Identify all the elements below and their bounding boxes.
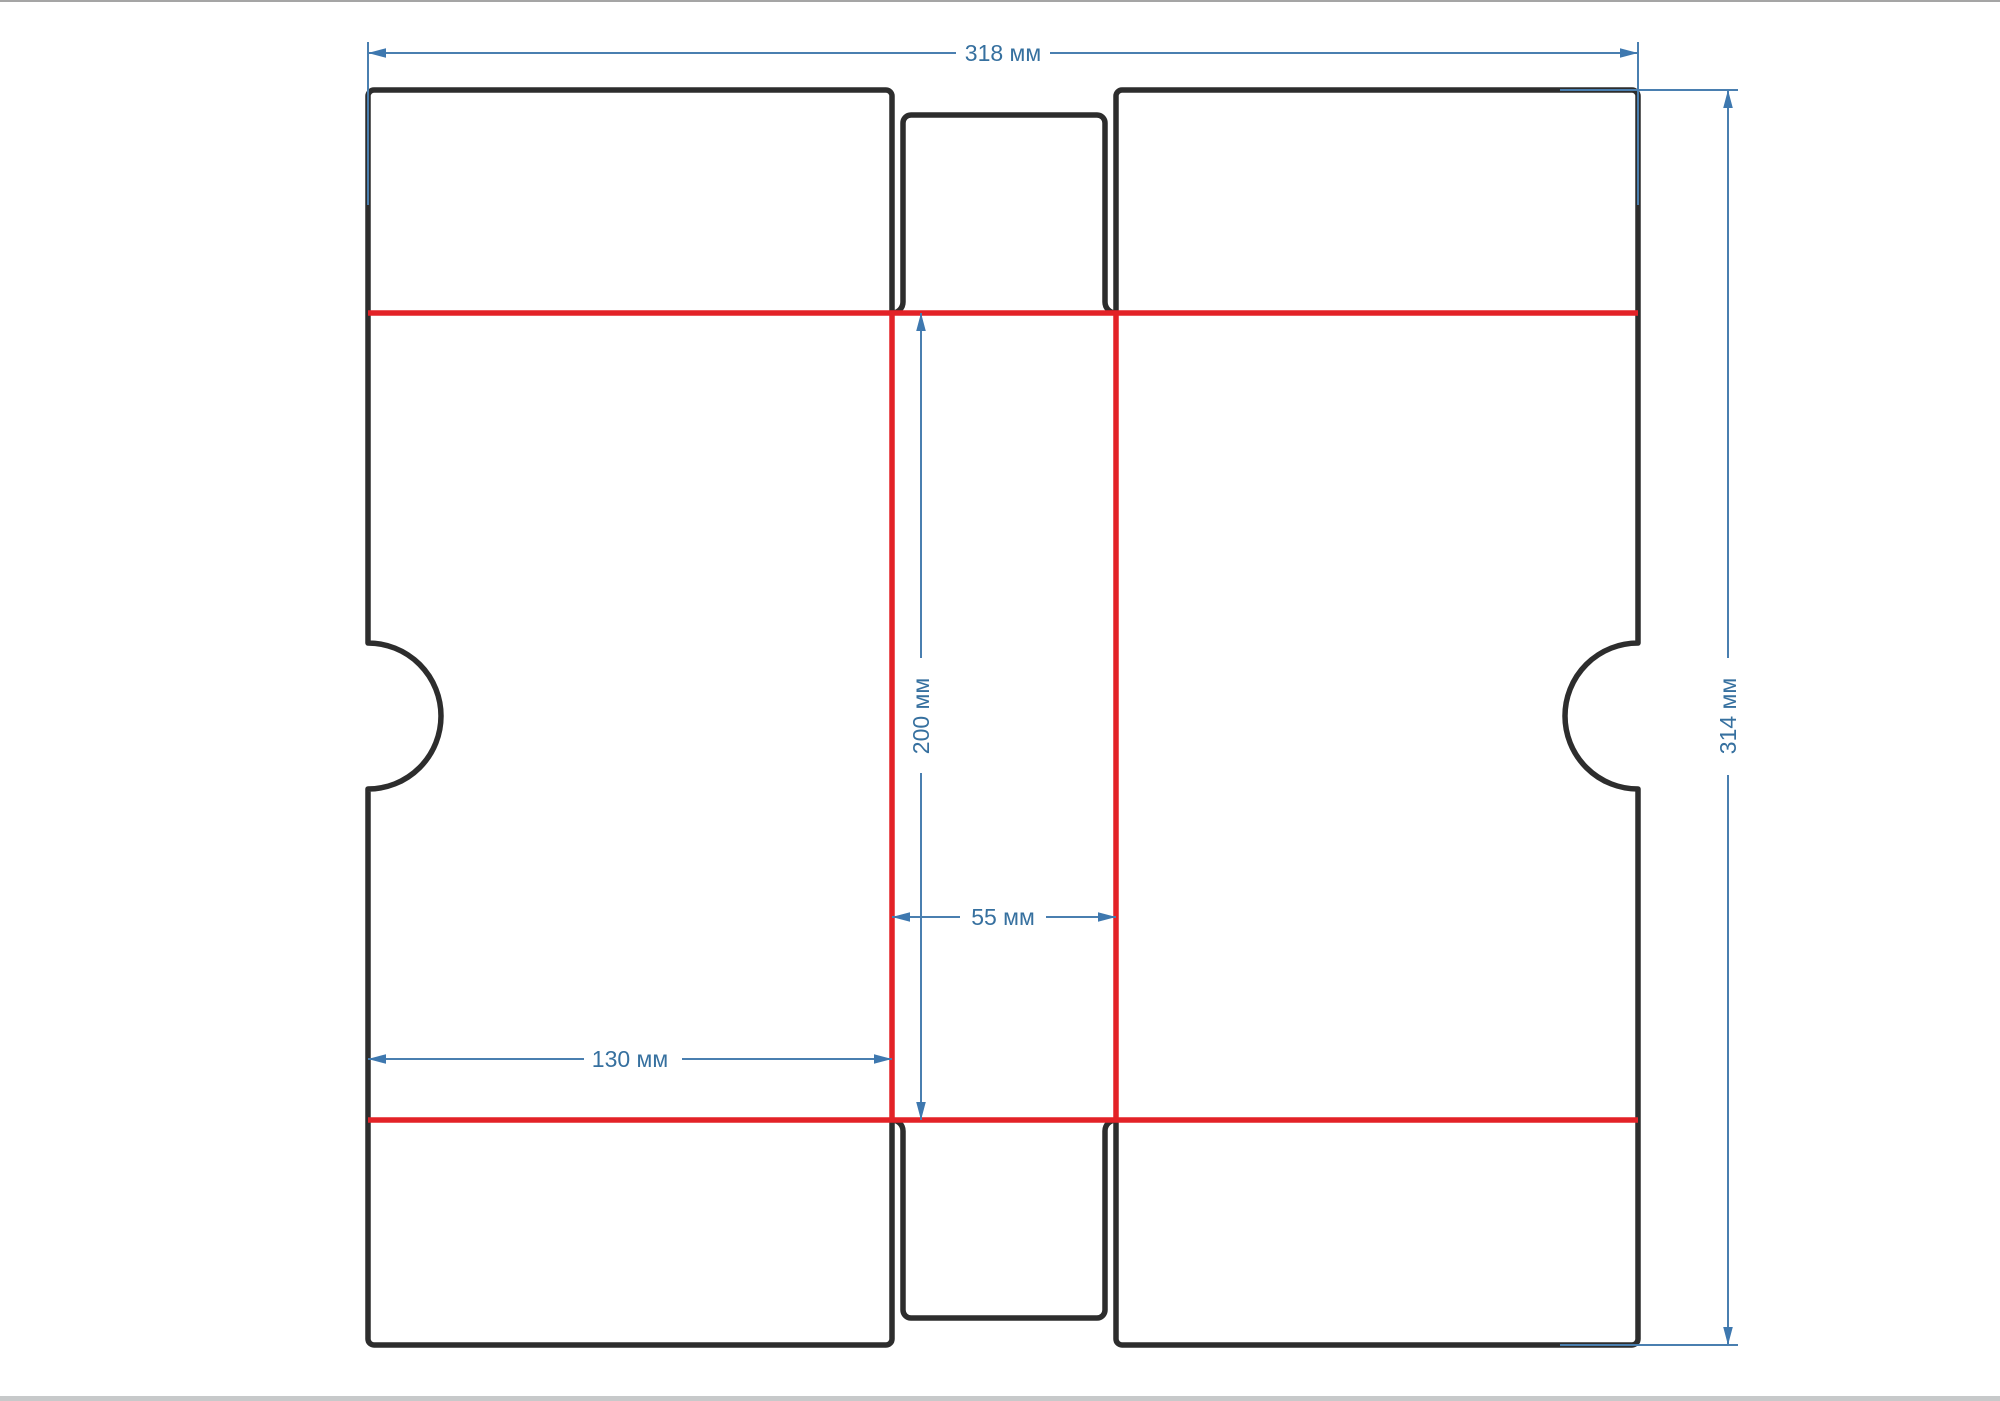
dieline-canvas: 318 мм 314 мм 200 мм 55 мм: [0, 0, 2000, 1401]
dimension-label-middle-column-height: 200 мм: [908, 678, 934, 754]
dimension-label-middle-column-width: 55 мм: [971, 904, 1035, 930]
bottom-window-edge: [0, 1396, 2000, 1401]
canvas-background: [0, 0, 2000, 1401]
drawing-page: 318 мм 314 мм 200 мм 55 мм: [0, 0, 2000, 1401]
dimension-label-total-width: 318 мм: [965, 40, 1041, 66]
top-window-edge: [0, 0, 2000, 2]
dimension-label-total-height: 314 мм: [1715, 678, 1741, 754]
dimension-label-left-panel-width: 130 мм: [592, 1046, 668, 1072]
